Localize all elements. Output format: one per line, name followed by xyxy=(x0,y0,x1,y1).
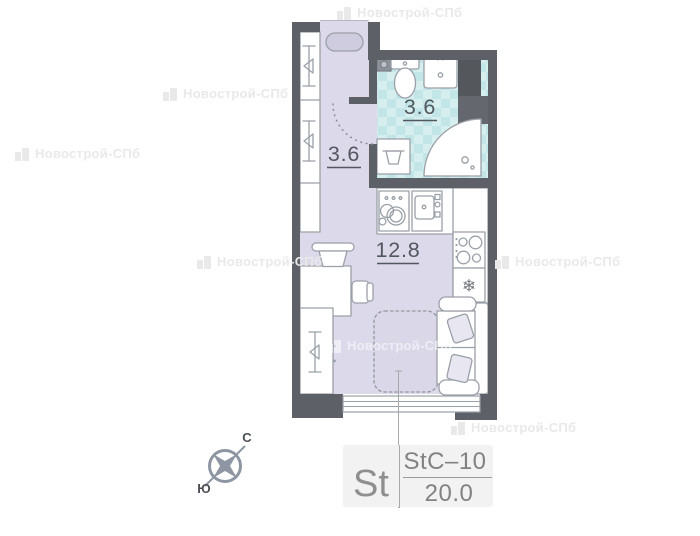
sofa xyxy=(437,297,488,395)
wall-bottom-left xyxy=(292,394,343,418)
info-block: St StC–10 20.0 xyxy=(343,445,493,508)
compass-south-label: Ю xyxy=(197,481,210,496)
vent-shaft xyxy=(458,57,481,96)
sofa-armrest xyxy=(439,297,476,311)
wall-top-left xyxy=(292,22,320,32)
total-area-label: 20.0 xyxy=(425,480,474,507)
washing-machine xyxy=(377,139,410,174)
snowflake-icon: ❄ xyxy=(462,277,476,296)
kitchen-sink xyxy=(412,191,442,231)
wall-right xyxy=(488,50,497,420)
plan-code-label: StC–10 xyxy=(403,448,486,475)
floor-plan-svg: ❄ xyxy=(0,0,700,536)
living-room-area-label: 12.8 xyxy=(375,238,420,262)
wardrobe xyxy=(300,308,336,394)
bathroom-doorway-floor xyxy=(369,98,377,144)
plan-type-label: St xyxy=(353,463,389,505)
dish-rack xyxy=(379,191,409,231)
wall-bathroom-bottom xyxy=(369,178,497,188)
compass: С Ю xyxy=(197,430,252,496)
floorplan-screenshot: ❄ xyxy=(0,0,700,536)
hallway-area-label: 3.6 xyxy=(328,142,360,166)
compass-north-label: С xyxy=(242,430,252,445)
wall-door-stub xyxy=(349,97,377,104)
sofa-armrest xyxy=(439,380,479,395)
window xyxy=(343,396,480,412)
stove xyxy=(453,232,485,268)
bathroom-area-label: 3.6 xyxy=(404,95,436,119)
chair xyxy=(352,281,373,303)
bed xyxy=(374,311,438,392)
entry-bench xyxy=(326,33,363,51)
hall-closets xyxy=(300,32,320,232)
wall-top xyxy=(368,50,497,60)
wall-left xyxy=(292,22,300,412)
wall-bathroom-left-upper xyxy=(369,60,377,98)
